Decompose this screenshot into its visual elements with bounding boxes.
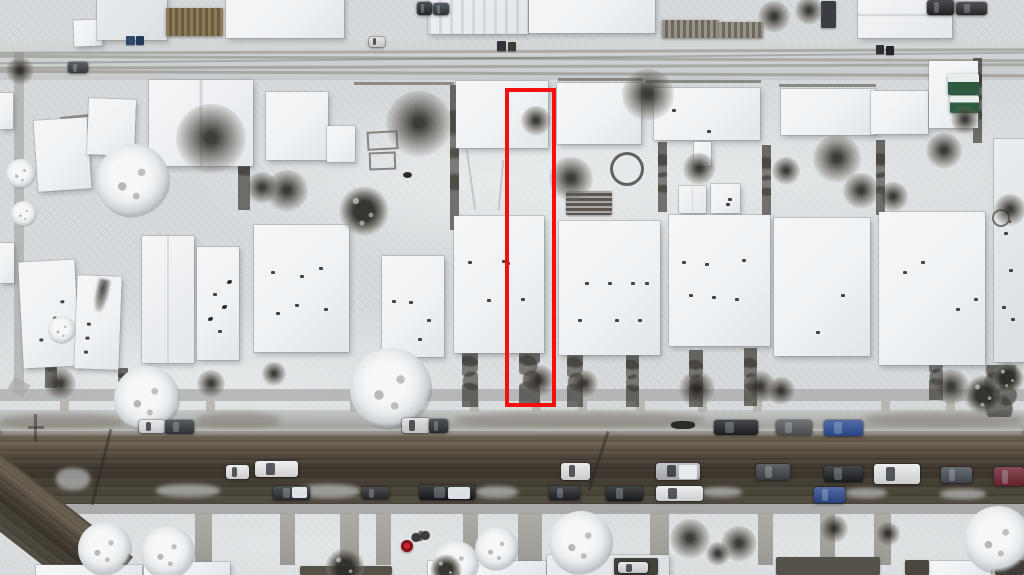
bare-tree xyxy=(679,371,715,407)
dog xyxy=(403,172,412,178)
dark-structure xyxy=(821,1,836,28)
hedgerow xyxy=(658,142,667,212)
bare-tree xyxy=(683,153,715,185)
dense-tree xyxy=(992,362,1024,394)
road-snow-patch xyxy=(476,486,518,498)
dense-tree xyxy=(339,186,389,236)
footpath-trail xyxy=(498,160,504,210)
driveway xyxy=(758,513,773,565)
bare-tree xyxy=(197,370,225,398)
house-roof xyxy=(254,225,349,352)
roof-vent xyxy=(728,198,732,201)
slat-canopy xyxy=(166,8,223,36)
road-debris xyxy=(671,421,695,429)
roof-vent xyxy=(85,337,89,340)
roof-vent xyxy=(705,263,709,266)
roof-vent xyxy=(468,261,472,264)
car-glass xyxy=(266,463,275,475)
roof-vent xyxy=(974,298,978,301)
garage-roof xyxy=(781,89,875,135)
road-snow-patch xyxy=(700,487,742,497)
snow-covered-tree xyxy=(141,526,195,575)
green-shed xyxy=(948,74,979,95)
car-glass xyxy=(569,465,575,477)
footpath-trail xyxy=(466,150,476,210)
car-glass xyxy=(434,487,445,498)
parked-car xyxy=(549,486,580,500)
roof-vent xyxy=(213,293,217,296)
parked-car xyxy=(417,2,432,15)
roof-vent xyxy=(682,261,686,264)
front-walk xyxy=(60,401,69,412)
car-glass xyxy=(409,420,415,431)
bare-tree xyxy=(767,377,795,405)
fence-line xyxy=(779,84,876,87)
property-boundary-annotation xyxy=(505,88,556,407)
slat-canopy xyxy=(662,20,719,38)
bare-tree xyxy=(246,172,278,204)
road-snow-patch xyxy=(940,489,986,499)
roof-vent xyxy=(87,323,91,326)
waste-bin xyxy=(886,46,894,55)
car-glass xyxy=(616,488,623,499)
bicycle xyxy=(410,529,431,543)
house-roof xyxy=(879,212,985,365)
aerial-winter-neighborhood-photo xyxy=(0,0,1024,575)
roof-vent xyxy=(1011,318,1015,321)
roof-vent xyxy=(276,312,280,315)
garden-bed xyxy=(369,152,397,171)
roof-vent xyxy=(672,109,676,112)
snow-covered-tree xyxy=(48,316,76,344)
parked-car xyxy=(824,466,863,482)
edge-roof xyxy=(0,243,14,283)
bare-tree xyxy=(878,182,908,212)
road-snow-patch xyxy=(56,468,90,490)
roof-vent xyxy=(735,298,739,301)
house-roof xyxy=(18,260,79,369)
bare-tree xyxy=(843,173,879,209)
slat-canopy xyxy=(719,22,763,38)
roof-vent xyxy=(1004,232,1008,235)
north-roof xyxy=(529,0,655,33)
bare-tree xyxy=(622,69,674,121)
roof-vent xyxy=(223,305,227,308)
driveway xyxy=(376,513,391,565)
roof-vent xyxy=(578,319,582,322)
waste-bin xyxy=(876,45,884,54)
roof-vent xyxy=(409,301,413,304)
snow-covered-tree xyxy=(96,144,170,218)
roof-vent xyxy=(319,267,323,270)
dense-tree xyxy=(325,548,365,575)
fence-line xyxy=(354,82,454,85)
parked-car xyxy=(273,486,310,500)
hedgerow xyxy=(462,345,478,407)
parked-car xyxy=(956,2,987,15)
car-glass xyxy=(667,465,676,477)
north-roof xyxy=(226,0,344,38)
bare-tree xyxy=(795,0,823,25)
car-glass xyxy=(232,467,237,477)
road-snow-patch xyxy=(156,484,220,497)
snow-covered-tree xyxy=(475,527,519,571)
snow-covered-tree xyxy=(964,506,1024,574)
bare-tree xyxy=(262,362,286,386)
car-glass xyxy=(173,422,179,432)
waste-bin xyxy=(126,36,135,45)
bare-tree xyxy=(758,1,790,33)
car-glass xyxy=(765,466,772,478)
house-roof xyxy=(669,215,770,346)
band-south-sidewalk xyxy=(0,504,1024,514)
roof-vent xyxy=(1009,269,1013,272)
pole-shadow xyxy=(34,414,37,442)
roof-vent xyxy=(689,294,693,297)
roof-vent xyxy=(84,351,88,354)
roof-vent xyxy=(418,338,422,341)
roof-vent xyxy=(707,130,711,133)
parked-car xyxy=(561,463,590,480)
parked-car xyxy=(874,464,920,484)
plowed-smudge xyxy=(455,412,705,428)
car-glass xyxy=(668,488,677,499)
car-glass xyxy=(557,488,563,498)
parked-car xyxy=(369,37,385,47)
car-glass xyxy=(834,468,842,480)
plowed-smudge xyxy=(0,414,124,430)
parked-car xyxy=(429,419,448,433)
waste-bin xyxy=(497,41,506,51)
roof-vent xyxy=(631,282,635,285)
parked-car xyxy=(776,420,812,435)
roof-vent xyxy=(1002,306,1006,309)
car-glass xyxy=(437,5,440,14)
roof-vent xyxy=(295,304,299,307)
bare-tree xyxy=(933,369,969,405)
car-glass xyxy=(1002,470,1008,484)
garage-roof xyxy=(266,92,328,160)
garage-roof xyxy=(871,91,928,134)
snow-covered-tree xyxy=(11,201,37,227)
roof-vent xyxy=(585,282,589,285)
house-roof xyxy=(774,218,870,356)
parked-car xyxy=(994,467,1024,486)
parked-car xyxy=(714,420,758,435)
roof-vent xyxy=(392,300,396,303)
bare-tree xyxy=(44,368,76,400)
car-glass xyxy=(785,422,792,433)
parked-car xyxy=(255,461,298,477)
parked-car xyxy=(814,487,845,503)
car-glass xyxy=(949,469,955,481)
roof-vent xyxy=(638,319,642,322)
waste-bin xyxy=(508,42,516,51)
parked-car xyxy=(606,486,643,501)
bare-tree xyxy=(994,194,1024,226)
house-roof xyxy=(559,221,660,355)
roof-vent xyxy=(427,319,431,322)
north-roof xyxy=(97,0,167,40)
parked-car xyxy=(226,465,249,479)
apartment-roof xyxy=(994,139,1024,362)
roof-vent xyxy=(324,308,328,311)
parked-car xyxy=(419,485,475,500)
parked-car xyxy=(402,418,430,433)
bare-tree xyxy=(926,133,962,169)
bare-tree xyxy=(706,542,730,566)
driveway xyxy=(195,513,212,565)
roof-vent xyxy=(487,299,491,302)
parked-car xyxy=(68,62,88,73)
front-walk xyxy=(206,401,215,412)
house-roof xyxy=(382,256,444,357)
snow-covered-tree xyxy=(549,511,613,575)
car-glass xyxy=(626,564,632,572)
parked-car xyxy=(433,3,449,15)
roof-vent xyxy=(816,331,820,334)
parked-car xyxy=(165,420,194,434)
bare-tree xyxy=(876,522,900,546)
car-snow-cap xyxy=(679,465,697,479)
car-glass xyxy=(964,4,970,13)
parked-car xyxy=(362,487,389,499)
hedgerow xyxy=(626,350,639,407)
driveway xyxy=(280,513,295,565)
roof-vent xyxy=(228,280,232,283)
car-snow-cap xyxy=(448,487,470,499)
roof-vent xyxy=(608,282,612,285)
shed-roof xyxy=(711,184,740,213)
screenshot-root xyxy=(0,0,1024,575)
waste-bin xyxy=(136,36,144,45)
roof-vent xyxy=(60,300,64,303)
roof-vent xyxy=(903,271,907,274)
dark-structure xyxy=(776,557,880,575)
front-walk xyxy=(881,401,890,412)
roof-vent xyxy=(218,330,222,333)
house-roof xyxy=(197,247,239,360)
roof-vent xyxy=(921,261,925,264)
car-glass xyxy=(283,488,290,498)
car-glass xyxy=(146,422,151,431)
parked-car xyxy=(941,467,972,483)
roof-vent xyxy=(271,271,275,274)
roof-vent xyxy=(712,296,716,299)
roof-vent xyxy=(300,275,304,278)
parked-car xyxy=(756,464,790,480)
shed-roof xyxy=(327,126,355,162)
dark-structure xyxy=(905,560,929,575)
car-glass xyxy=(369,489,374,498)
parked-car xyxy=(139,420,165,433)
roof-vent xyxy=(39,338,43,341)
bare-tree xyxy=(6,57,34,85)
parked-car xyxy=(656,486,703,501)
car-glass xyxy=(434,421,438,431)
snow-covered-tree xyxy=(78,522,132,575)
roof-vent xyxy=(645,282,649,285)
car-glass xyxy=(822,489,828,501)
bare-tree xyxy=(386,91,452,157)
road-snow-patch xyxy=(845,488,887,498)
roof-vent xyxy=(209,317,213,320)
parked-car xyxy=(618,562,648,573)
car-snow-cap xyxy=(292,487,307,498)
roof-vent xyxy=(726,203,730,206)
car-glass xyxy=(73,64,77,72)
car-glass xyxy=(934,2,939,13)
car-glass xyxy=(725,422,734,433)
hedgerow xyxy=(762,145,771,215)
shed-roof xyxy=(679,186,706,213)
roof-vent xyxy=(742,259,746,262)
plowed-smudge xyxy=(196,412,280,430)
driveway xyxy=(518,513,542,565)
parked-car xyxy=(927,0,954,15)
bare-tree xyxy=(772,157,800,185)
bare-tree xyxy=(670,519,710,559)
car-glass xyxy=(886,467,895,481)
trampoline xyxy=(610,152,644,186)
parked-car xyxy=(824,420,863,436)
roof-vent xyxy=(956,308,960,311)
bare-tree xyxy=(176,104,246,174)
roof-vent xyxy=(615,319,619,322)
bare-tree xyxy=(951,106,979,134)
garage-roof xyxy=(34,117,92,192)
bare-tree xyxy=(820,515,848,543)
bare-tree xyxy=(570,370,598,398)
parked-car xyxy=(656,463,700,480)
car-glass xyxy=(373,38,376,45)
edge-roof xyxy=(0,93,13,129)
car-glass xyxy=(421,4,424,13)
house-roof xyxy=(142,236,194,363)
roof-vent xyxy=(841,294,845,297)
car-glass xyxy=(834,422,842,434)
snow-covered-tree xyxy=(6,159,36,189)
